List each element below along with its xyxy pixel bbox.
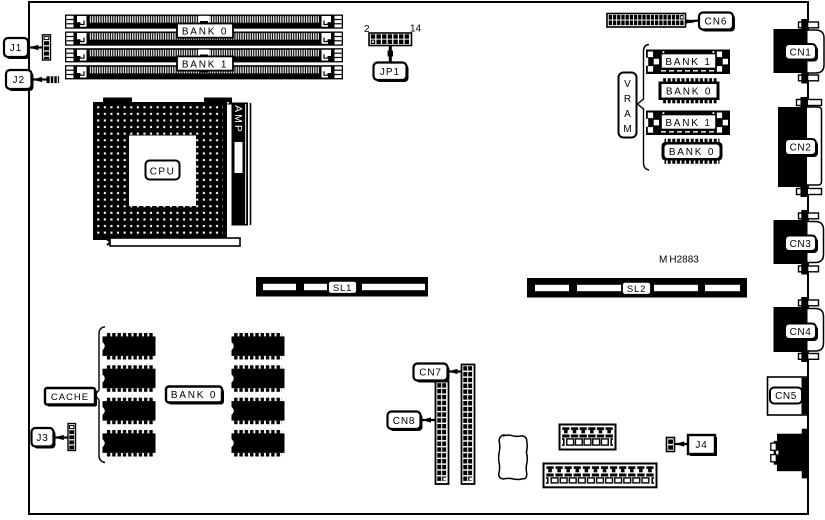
svg-text:J1: J1 [10, 43, 23, 54]
svg-text:JP1: JP1 [380, 67, 400, 78]
svg-text:SL1: SL1 [333, 283, 352, 294]
svg-text:M: M [623, 124, 631, 135]
svg-text:J3: J3 [36, 433, 48, 444]
svg-text:BANK 0: BANK 0 [669, 147, 715, 158]
svg-text:CN7: CN7 [419, 368, 441, 379]
svg-text:MH2883: MH2883 [659, 255, 699, 266]
svg-text:BANK 1: BANK 1 [182, 59, 228, 70]
svg-text:BANK 0: BANK 0 [171, 390, 217, 401]
svg-text:AMP: AMP [232, 105, 244, 134]
svg-text:V: V [624, 79, 631, 90]
svg-text:CN8: CN8 [393, 416, 415, 427]
svg-text:BANK 0: BANK 0 [182, 27, 228, 38]
svg-text:CN6: CN6 [704, 17, 727, 28]
svg-text:A: A [624, 109, 631, 120]
svg-text:BANK 1: BANK 1 [665, 118, 711, 129]
svg-text:SL2: SL2 [627, 284, 646, 295]
svg-text:R: R [624, 94, 631, 105]
svg-text:CN2: CN2 [790, 143, 812, 154]
svg-text:CN4: CN4 [790, 327, 812, 338]
svg-text:CN3: CN3 [790, 239, 812, 250]
svg-text:J4: J4 [695, 440, 707, 451]
svg-text:CN1: CN1 [790, 47, 812, 58]
svg-text:J2: J2 [12, 75, 25, 86]
svg-text:CN5: CN5 [775, 391, 797, 402]
svg-text:2: 2 [364, 24, 370, 35]
svg-text:BANK 0: BANK 0 [666, 86, 712, 97]
svg-text:CPU: CPU [150, 166, 176, 177]
svg-text:CACHE: CACHE [51, 392, 89, 403]
svg-text:14: 14 [410, 24, 422, 35]
svg-text:BANK 1: BANK 1 [665, 57, 711, 68]
